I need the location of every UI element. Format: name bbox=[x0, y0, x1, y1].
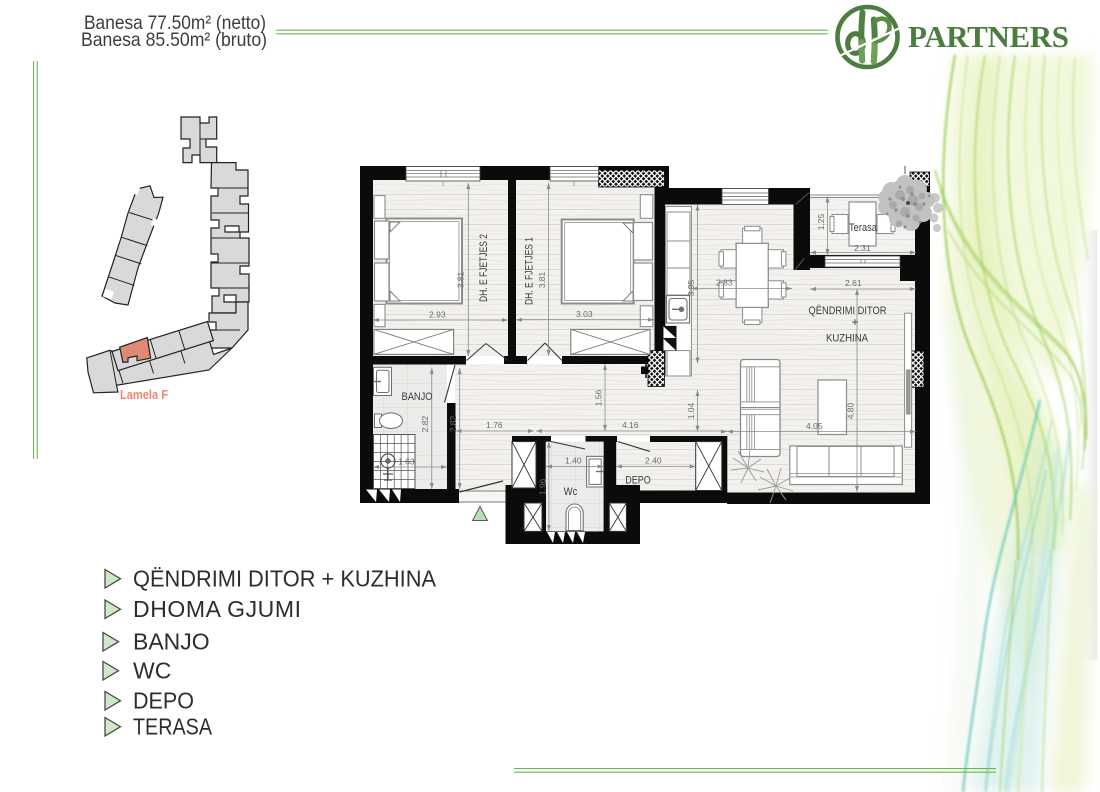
svg-text:DEPO: DEPO bbox=[625, 475, 651, 487]
svg-text:Wc: Wc bbox=[564, 486, 578, 498]
svg-text:3.81: 3.81 bbox=[537, 271, 547, 288]
svg-text:1.63: 1.63 bbox=[398, 457, 415, 467]
svg-text:1.96: 1.96 bbox=[537, 478, 547, 495]
svg-text:QËNDRIMI DITOR: QËNDRIMI DITOR bbox=[809, 305, 887, 317]
svg-text:3.81: 3.81 bbox=[456, 271, 466, 288]
svg-text:QËNDRIMI DITOR + KUZHINA: QËNDRIMI DITOR + KUZHINA bbox=[133, 566, 437, 592]
svg-text:2.82: 2.82 bbox=[448, 415, 458, 432]
svg-text:2.82: 2.82 bbox=[420, 415, 430, 432]
svg-text:2.31: 2.31 bbox=[854, 243, 871, 253]
svg-text:2.83: 2.83 bbox=[716, 278, 733, 288]
svg-text:2.61: 2.61 bbox=[845, 278, 862, 288]
svg-text:4.80: 4.80 bbox=[846, 402, 856, 419]
svg-text:KUZHINA: KUZHINA bbox=[826, 333, 869, 345]
svg-text:DEPO: DEPO bbox=[133, 688, 194, 714]
svg-text:DHOMA GJUMI: DHOMA GJUMI bbox=[133, 596, 301, 622]
svg-text:3.03: 3.03 bbox=[576, 309, 593, 319]
svg-text:WC: WC bbox=[133, 658, 171, 684]
svg-text:1.40: 1.40 bbox=[565, 456, 582, 466]
svg-text:BANJO: BANJO bbox=[133, 629, 210, 655]
svg-text:4.05: 4.05 bbox=[806, 421, 823, 431]
svg-text:DH. E FJETJES 1: DH. E FJETJES 1 bbox=[524, 237, 536, 305]
svg-text:1.04: 1.04 bbox=[686, 402, 696, 419]
svg-text:+: + bbox=[852, 317, 859, 329]
svg-text:BANJO: BANJO bbox=[402, 391, 433, 403]
svg-text:1.25: 1.25 bbox=[816, 213, 826, 230]
svg-text:PARTNERS: PARTNERS bbox=[908, 19, 1069, 54]
svg-text:1.76: 1.76 bbox=[486, 420, 503, 430]
svg-text:3.95: 3.95 bbox=[686, 279, 696, 296]
svg-text:Lamela F: Lamela F bbox=[120, 388, 168, 402]
svg-text:Banesa 85.50m² (bruto): Banesa 85.50m² (bruto) bbox=[81, 29, 267, 51]
svg-text:2.93: 2.93 bbox=[429, 310, 446, 320]
svg-text:2.40: 2.40 bbox=[645, 456, 662, 466]
svg-text:1.56: 1.56 bbox=[594, 389, 604, 406]
svg-text:4.16: 4.16 bbox=[622, 420, 639, 430]
svg-text:DH. E FJETJES 2: DH. E FJETJES 2 bbox=[478, 234, 490, 302]
svg-text:Terasa: Terasa bbox=[849, 222, 878, 234]
svg-text:TERASA: TERASA bbox=[133, 714, 213, 740]
